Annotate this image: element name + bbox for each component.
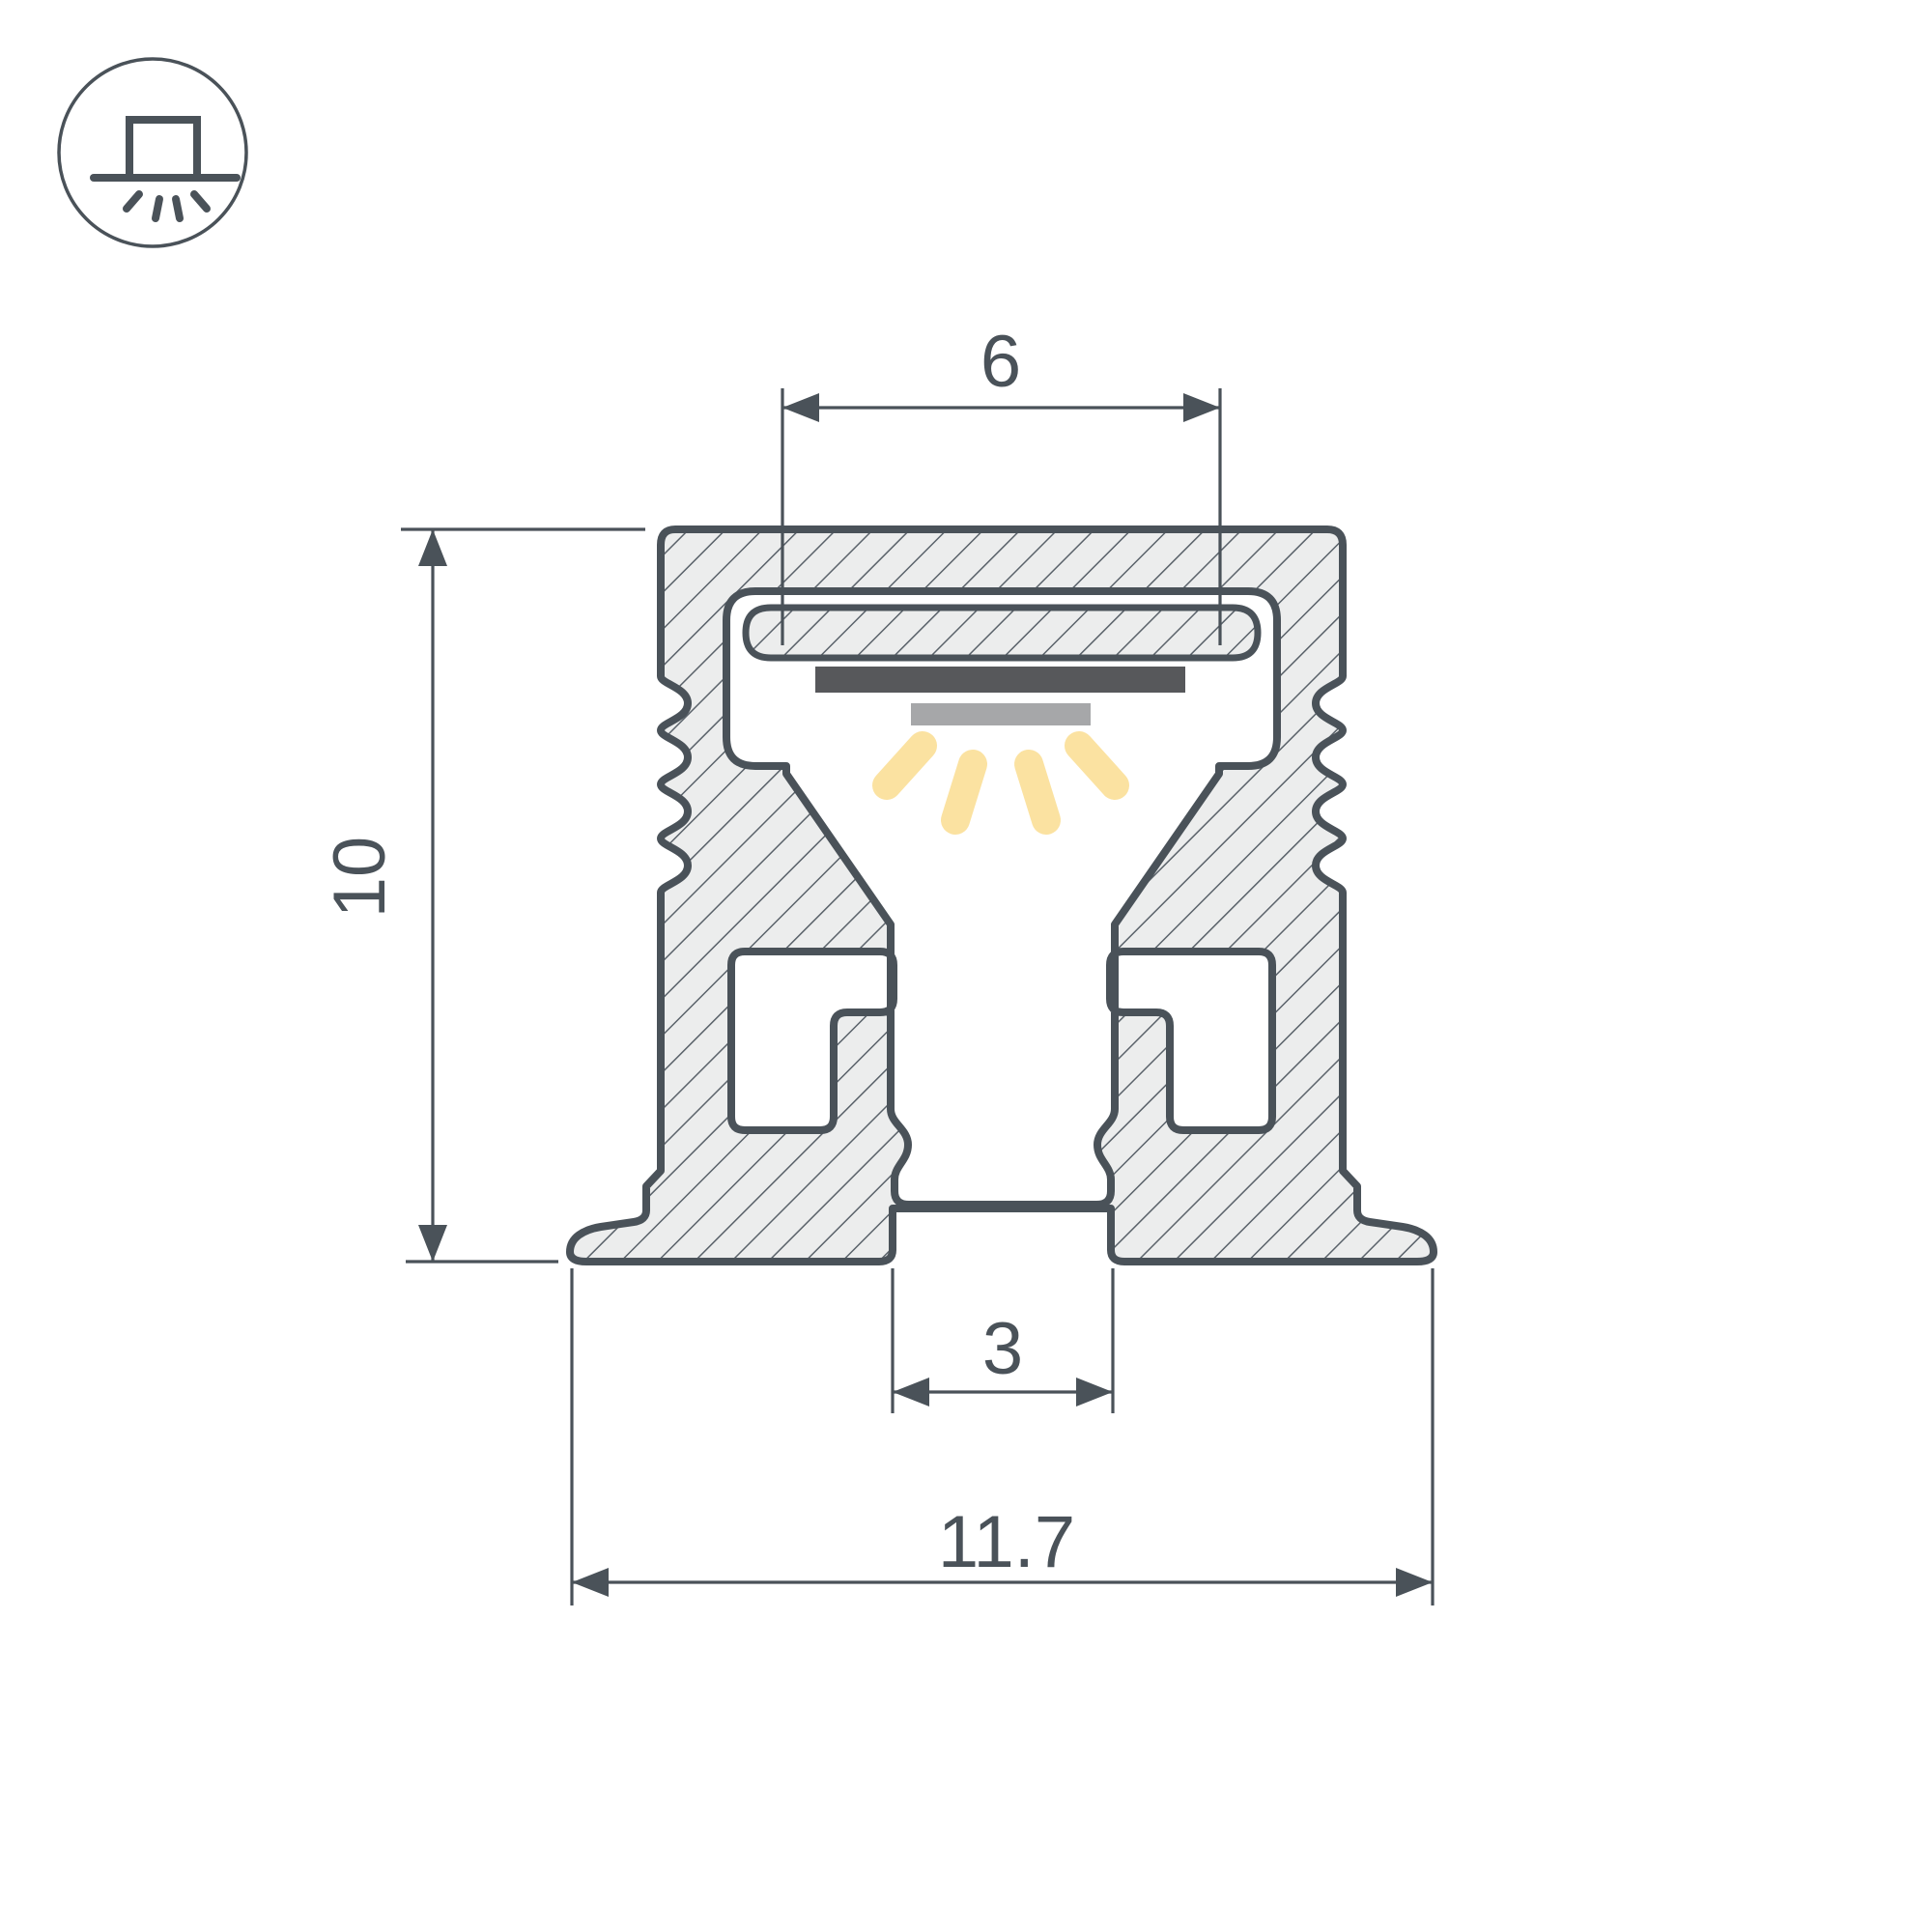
icon-ray-2: [156, 199, 159, 218]
dimension-label-top: 6: [980, 321, 1021, 403]
dimension-label-width: 11.7: [938, 1501, 1075, 1583]
light-rays: [887, 746, 1115, 820]
dimension-label-height: 10: [319, 837, 401, 919]
dimension-label-slot: 3: [982, 1308, 1023, 1390]
surface-mounted-downlight-icon: [59, 59, 246, 246]
diffuser-screen: [746, 608, 1258, 658]
light-ray-1: [887, 746, 923, 785]
light-ray-3: [1029, 764, 1046, 820]
dimension-bottom-slot: 3: [893, 1268, 1113, 1413]
icon-ray-3: [176, 199, 180, 218]
dimension-top-slot: 6: [782, 321, 1220, 645]
light-ray-4: [1079, 746, 1115, 785]
dimension-height: 10: [319, 529, 645, 1262]
light-ray-2: [955, 764, 973, 820]
profile-body-group: [570, 529, 1434, 1262]
led-pcb-bar: [815, 667, 1185, 693]
led-strip-group: [815, 667, 1185, 820]
profile-drawing: 6 10 3 11.7: [0, 0, 1932, 1932]
drawing-canvas: 6 10 3 11.7: [0, 0, 1932, 1932]
led-emitter-bar: [911, 703, 1091, 725]
